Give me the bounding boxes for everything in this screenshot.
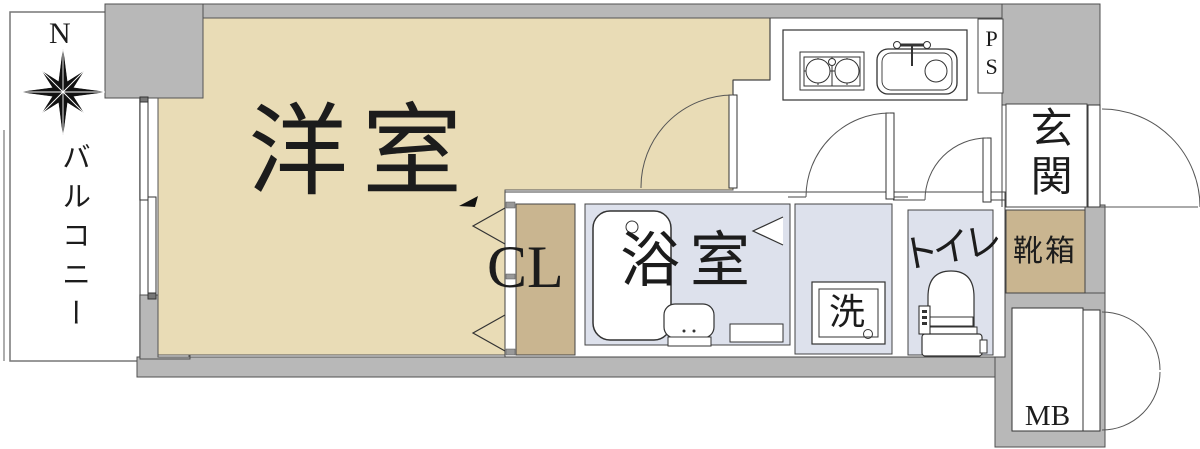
shoe-box-label: 靴箱 bbox=[1013, 236, 1077, 268]
entrance-label: 玄関 bbox=[1025, 106, 1069, 210]
entrance-door-leaf bbox=[1088, 105, 1100, 207]
meter-box-label: MB PS bbox=[1012, 334, 1083, 449]
kitchen bbox=[783, 30, 967, 100]
western-room-label: 洋室 bbox=[248, 100, 476, 205]
balcony-label: バルコニー bbox=[58, 142, 88, 337]
washroom-door-swing bbox=[806, 113, 890, 197]
meter-box-door-swing bbox=[1102, 312, 1160, 370]
sink-icon bbox=[877, 42, 957, 95]
toilet-door-leaf bbox=[983, 138, 991, 202]
entrance-door-swing bbox=[1102, 109, 1200, 207]
bathroom-label: 浴室 bbox=[620, 230, 760, 293]
compass-north-label: N bbox=[49, 18, 71, 50]
pipe-space-label: PS bbox=[980, 26, 1003, 82]
meter-box-door-swing bbox=[1102, 372, 1160, 430]
washroom-door-leaf bbox=[886, 113, 894, 199]
bath-basin-base bbox=[668, 337, 711, 346]
washer-label: 洗 bbox=[829, 294, 865, 332]
room-door-leaf bbox=[729, 95, 737, 188]
closet-label: CL bbox=[487, 236, 564, 299]
sliding-window bbox=[140, 97, 156, 299]
bath-step bbox=[730, 324, 783, 342]
meter-box-label-line1: MB bbox=[1012, 400, 1083, 433]
bath-basin bbox=[664, 304, 714, 338]
meter-box-doors bbox=[1083, 310, 1100, 431]
toilet-door-swing bbox=[925, 138, 987, 200]
floor-plan: N バルコニー 洋室 CL 浴室 洗 トイレ 玄関 靴箱 PS MB PS bbox=[0, 0, 1200, 449]
